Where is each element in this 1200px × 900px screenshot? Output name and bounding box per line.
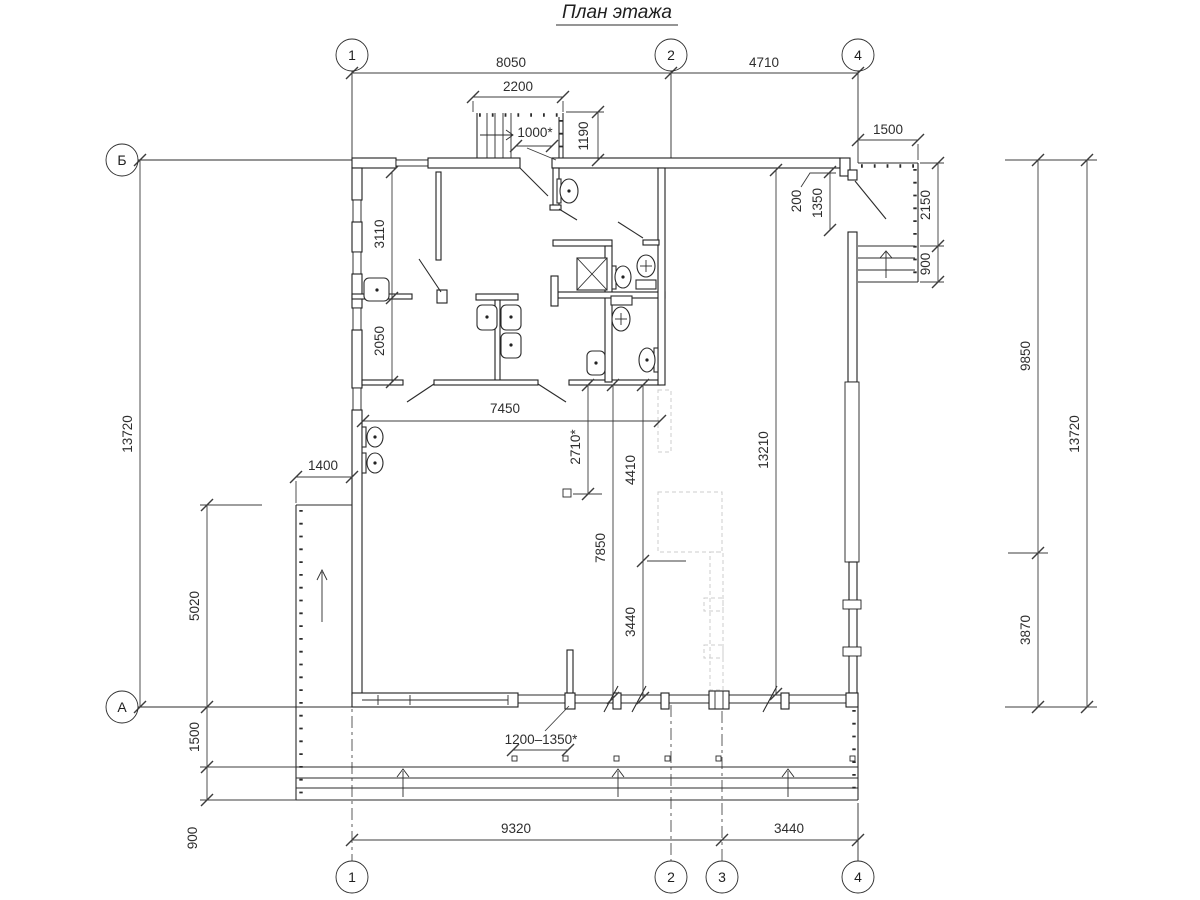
dim-1500-terrace: 1500	[187, 722, 202, 752]
svg-text:2: 2	[667, 869, 675, 885]
floor-plan-page: План этажа	[0, 0, 1200, 900]
shower-icon	[577, 258, 607, 290]
svg-text:Б: Б	[117, 152, 126, 168]
hidden-outlines	[658, 390, 723, 690]
terrace-post	[850, 756, 855, 761]
sink-icon	[501, 333, 521, 358]
axis-bubble-a-left: А	[106, 691, 138, 723]
terrace-post	[716, 756, 721, 761]
dim-13210: 13210	[756, 431, 771, 469]
dim-3110: 3110	[372, 219, 387, 248]
dim-1200-1350: 1200–1350*	[505, 732, 579, 747]
terrace	[296, 707, 858, 800]
dim-4410: 4410	[623, 455, 638, 485]
door-leaf	[538, 384, 566, 402]
sink-icon	[364, 278, 389, 301]
fixtures	[362, 179, 658, 473]
dim-7850: 7850	[593, 533, 608, 563]
door-leaf	[419, 259, 441, 292]
axis-bubble-4-top: 4	[842, 39, 874, 71]
exterior-walls	[352, 158, 886, 712]
svg-text:4: 4	[854, 47, 862, 63]
dim-1350: 1350	[810, 188, 825, 218]
axis-bubble-2-bottom: 2	[655, 861, 687, 893]
page-title: План этажа	[562, 2, 672, 23]
svg-text:2: 2	[667, 47, 675, 63]
axis-grid-lines	[138, 71, 858, 861]
door-leaf	[618, 222, 643, 238]
floor-plan-drawing: План этажа	[0, 0, 1200, 900]
dim-200: 200	[789, 190, 804, 213]
door-mark	[632, 686, 646, 712]
dim-13720-left: 13720	[120, 415, 135, 453]
column	[661, 693, 669, 709]
dim-3870: 3870	[1018, 615, 1033, 645]
terrace-post	[512, 756, 517, 761]
svg-text:1: 1	[348, 47, 356, 63]
door-leaf	[559, 209, 577, 220]
dim-2050: 2050	[372, 326, 387, 356]
column	[613, 693, 621, 709]
dim-8050: 8050	[496, 55, 526, 70]
door-mark	[763, 686, 777, 712]
door-leaf	[407, 384, 434, 402]
dim-7450: 7450	[490, 401, 520, 416]
drawing-title: План этажа	[556, 2, 678, 25]
sink-icon	[477, 305, 497, 330]
column	[565, 693, 575, 709]
dim-3440-bottom: 3440	[774, 821, 804, 836]
svg-text:А: А	[117, 699, 127, 715]
side-door-leaf	[855, 181, 886, 219]
dim-1400: 1400	[308, 458, 338, 473]
toilet-icon	[636, 255, 656, 289]
dim-2150: 2150	[918, 190, 933, 220]
dim-9850: 9850	[1018, 341, 1033, 371]
sink-icon	[587, 351, 605, 375]
washbasin-icon	[362, 453, 383, 473]
dim-1190: 1190	[576, 121, 591, 150]
terrace-stair-arrows	[397, 769, 794, 797]
reference-marker	[563, 489, 571, 497]
dim-2710: 2710*	[568, 429, 583, 465]
axis-bubble-2-top: 2	[655, 39, 687, 71]
sink-icon	[501, 305, 521, 330]
toilet-icon	[611, 296, 632, 331]
svg-text:4: 4	[854, 869, 862, 885]
axis-bubble-b-left: Б	[106, 144, 138, 176]
dim-2200: 2200	[503, 79, 533, 94]
axis-bubble-1-bottom: 1	[336, 861, 368, 893]
dim-900-porch: 900	[918, 253, 933, 276]
svg-text:1: 1	[348, 869, 356, 885]
terrace-post	[563, 756, 568, 761]
dim-1500-porch: 1500	[873, 122, 903, 137]
svg-text:3: 3	[718, 869, 726, 885]
dimension-lines	[134, 67, 1097, 846]
dim-5020: 5020	[187, 591, 202, 621]
axis-bubble-3-bottom: 3	[706, 861, 738, 893]
dim-3440-mid: 3440	[623, 607, 638, 637]
dim-13720-right: 13720	[1067, 415, 1082, 453]
washbasin-icon	[557, 179, 578, 203]
column	[781, 693, 789, 709]
terrace-post	[614, 756, 619, 761]
column	[709, 691, 729, 709]
entry-door-leaf	[520, 168, 548, 196]
terrace-post	[665, 756, 670, 761]
dim-1000: 1000*	[517, 125, 553, 140]
ramp-annex	[296, 505, 352, 800]
washbasin-icon	[362, 427, 383, 447]
dim-9320: 9320	[501, 821, 531, 836]
axis-bubble-1-top: 1	[336, 39, 368, 71]
dim-4710: 4710	[749, 55, 779, 70]
dim-900-terrace: 900	[185, 827, 200, 850]
side-porch	[858, 163, 918, 282]
axis-bubble-4-bottom: 4	[842, 861, 874, 893]
washbasin-icon	[639, 348, 658, 372]
washbasin-icon	[612, 266, 631, 289]
